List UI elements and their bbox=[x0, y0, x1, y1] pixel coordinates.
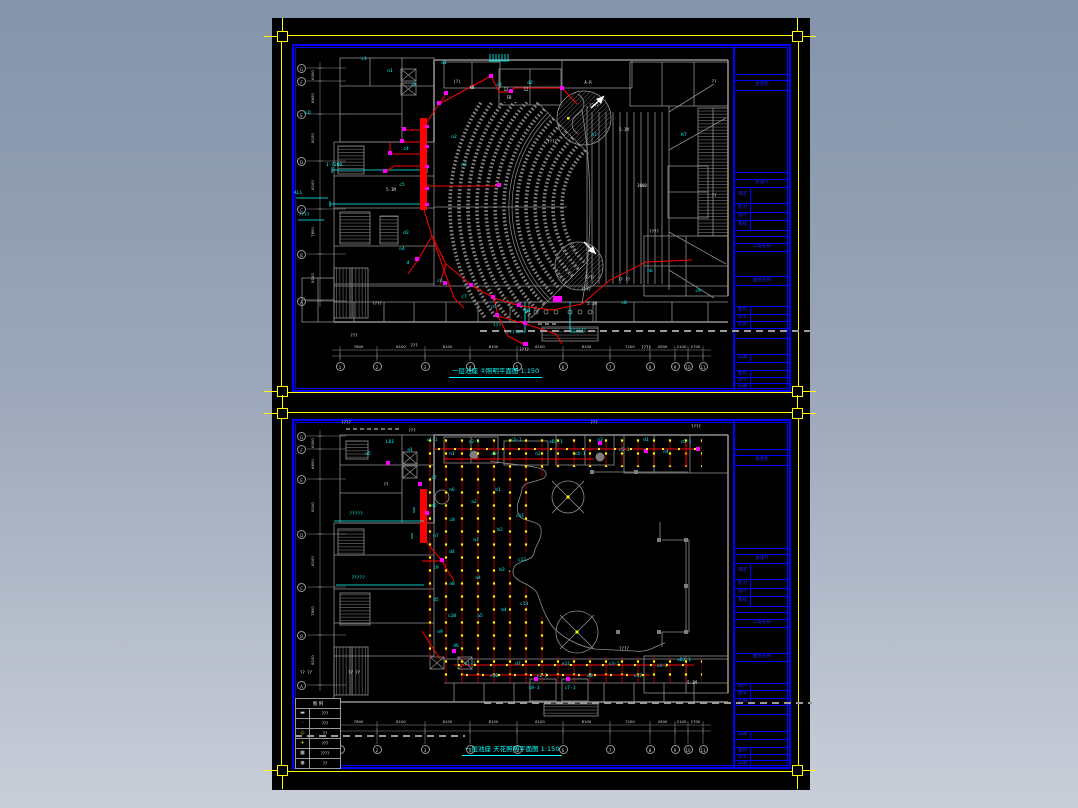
dimension-note: ???? bbox=[585, 276, 595, 280]
circuit-label: b2 bbox=[497, 529, 502, 534]
grid-bubble: 7 bbox=[606, 745, 615, 754]
ceiling-light-dot bbox=[630, 448, 632, 450]
title-block-label: 图别 bbox=[738, 372, 747, 377]
ceiling-light-dot bbox=[582, 448, 584, 450]
title-block-row-会签栏: 会签栏 bbox=[735, 80, 789, 89]
title-block-row bbox=[735, 739, 789, 747]
title-block-label: 图别 bbox=[738, 684, 747, 689]
frame-corner-mark bbox=[792, 765, 803, 776]
dimension-note: ???? bbox=[641, 346, 651, 350]
annotation-overlay: c1-1n1c2-1d3c3-1n2xD1-1c4-1n3c5-1d1n4c6-… bbox=[294, 421, 735, 767]
ceiling-light-dot bbox=[694, 448, 696, 450]
ceiling-light-dot bbox=[634, 664, 636, 666]
circuit-label: ????? bbox=[351, 577, 365, 582]
title-block-row bbox=[735, 338, 789, 355]
dot-symbol-icon: ● bbox=[296, 759, 310, 768]
title-block-row-比例: 比例 bbox=[735, 321, 789, 328]
ceiling-light-dot bbox=[482, 674, 484, 676]
title-block-row bbox=[735, 705, 789, 714]
circuit-label: d3 bbox=[491, 453, 496, 458]
dimension-value: 8100 bbox=[535, 720, 545, 724]
dimension-note: (?) bbox=[453, 80, 460, 84]
title-block: 会签栏总设计审定校对设计审核工程名称图纸名称图别图号比例日期图别图号日期 bbox=[733, 46, 789, 390]
circuit-label: n6 bbox=[449, 489, 454, 494]
dimension-value: 6000 bbox=[311, 70, 315, 80]
title-block-row bbox=[735, 251, 789, 276]
dimension-value: 2700 bbox=[691, 345, 701, 349]
grid-bubble: 11 bbox=[699, 362, 708, 371]
circuit-label: n4 bbox=[399, 248, 404, 253]
title-block-row bbox=[735, 548, 789, 555]
circuit-label: LD bbox=[305, 112, 310, 117]
annotation-overlay: c1n1c2d1c3d2LD1-7200AL1????n2n3c4c5d3n4c… bbox=[294, 46, 735, 390]
circuit-label: a3 bbox=[473, 539, 478, 544]
grid-bubble: E bbox=[297, 475, 306, 484]
title-block-row-图别: 图别 bbox=[735, 747, 789, 754]
grid-bubble: F bbox=[297, 445, 306, 454]
title-block-label: 审定 bbox=[738, 569, 747, 574]
circuit-label: c5-1 bbox=[619, 449, 630, 454]
legend-row: +??? bbox=[296, 738, 340, 748]
dimension-value: 2100 bbox=[677, 345, 687, 349]
circuit-label: n12 bbox=[634, 675, 642, 680]
title-block-row-日期: 日期 bbox=[735, 731, 789, 739]
circuit-label: c3 bbox=[496, 84, 501, 89]
ceiling-light-dot bbox=[614, 448, 616, 450]
dimension-note: ?? bbox=[384, 483, 389, 487]
circuit-label: n2 bbox=[535, 453, 540, 458]
title-block-label: 日期 bbox=[738, 385, 747, 390]
dimension-value: 4500 bbox=[658, 345, 668, 349]
circuit-label: c3-1 bbox=[511, 439, 522, 444]
ceiling-light-dot bbox=[454, 448, 456, 450]
dimension-value: 8100 bbox=[582, 345, 592, 349]
circuit-label: ???? bbox=[299, 214, 310, 219]
dimension-value: 8100 bbox=[489, 345, 499, 349]
grid-bubble: 10 bbox=[684, 745, 693, 754]
drawing-caption: 一层池座 天花照明平面图 1:150 bbox=[462, 746, 562, 756]
ceiling-light-dot bbox=[610, 674, 612, 676]
circuit-label: a1 bbox=[407, 449, 412, 454]
dimension-value: 8100 bbox=[311, 273, 315, 283]
title-block-label: 会签栏 bbox=[755, 83, 769, 88]
dimension-note: 3000 bbox=[637, 184, 647, 188]
dimension-value: 8100 bbox=[311, 502, 315, 512]
circuit-label: c4 bbox=[403, 148, 408, 153]
dimension-note: ???? bbox=[649, 230, 659, 234]
grid-bubble: A bbox=[297, 297, 306, 306]
title-block-label: 设计 bbox=[738, 590, 747, 595]
circuit-label: AL1 bbox=[294, 192, 302, 197]
circuit-label: LD1 bbox=[386, 441, 394, 446]
circuit-label: a4 bbox=[475, 577, 480, 582]
ceiling-light-dot bbox=[466, 674, 468, 676]
circuit-label: KT bbox=[681, 134, 686, 139]
ceiling-light-dot bbox=[458, 664, 460, 666]
title-block-label: 工程名称 bbox=[753, 621, 771, 626]
frame-corner-mark bbox=[792, 31, 803, 42]
dimension-note: ??? bbox=[590, 421, 597, 425]
ceiling-light-dot bbox=[534, 448, 536, 450]
title-block-row-工程名称: 工程名称 bbox=[735, 619, 789, 627]
ceiling-light-dot bbox=[666, 664, 668, 666]
legend-header: 图 例 bbox=[296, 699, 340, 708]
ceiling-light-dot bbox=[570, 664, 572, 666]
floor-plan-seating: c1n1c2d1c3d2LD1-7200AL1????n2n3c4c5d3n4c… bbox=[294, 46, 735, 390]
sheet-border: c1-1n1c2-1d3c3-1n2xD1-1c4-1n3c5-1d1n4c6-… bbox=[292, 419, 791, 769]
symbol-legend: 图 例▬???·???◇??+???■????●?? bbox=[295, 698, 341, 769]
title-block-label: 审核 bbox=[738, 599, 747, 604]
title-block-label: 日期 bbox=[738, 733, 747, 738]
ceiling-light-dot bbox=[646, 448, 648, 450]
cad-preview: { "colors":{"frame_yellow":"#ffff00","bo… bbox=[0, 0, 1078, 808]
legend-row: ▬??? bbox=[296, 708, 340, 718]
dimension-note: 12 bbox=[504, 88, 509, 92]
title-block-label: 审定 bbox=[738, 193, 747, 198]
circuit-label: d bbox=[407, 262, 410, 267]
dimension-value: 8100 bbox=[311, 556, 315, 566]
dimension-value: 4500 bbox=[658, 720, 668, 724]
dimension-value: 7800 bbox=[354, 720, 364, 724]
ceiling-light-dot bbox=[594, 674, 596, 676]
grid-bubble: 2 bbox=[373, 362, 382, 371]
circuit-label: c4-1 bbox=[575, 453, 586, 458]
title-block-label: 工程名称 bbox=[753, 245, 771, 250]
title-block-row-日期: 日期 bbox=[735, 354, 789, 361]
ceiling-light-dot bbox=[626, 674, 628, 676]
title-block-row-审定: 审定 bbox=[735, 187, 789, 203]
circuit-label: n8 bbox=[449, 583, 454, 588]
circuit-label: d3 bbox=[403, 232, 408, 237]
section-dashed-line bbox=[295, 735, 465, 737]
legend-text: ?? bbox=[310, 762, 340, 766]
title-block-label: 图号 bbox=[738, 378, 747, 383]
circuit-label: c9 bbox=[433, 567, 438, 572]
ceiling-light-dot bbox=[474, 664, 476, 666]
frame-corner-mark bbox=[277, 31, 288, 42]
circuit-label: n1 bbox=[449, 453, 454, 458]
dimension-note: ???? bbox=[372, 302, 382, 306]
ceiling-light-dot bbox=[566, 448, 568, 450]
ceiling-light-dot bbox=[618, 664, 620, 666]
dimension-note: 5.1M bbox=[619, 128, 629, 132]
frame-corner-mark bbox=[792, 408, 803, 419]
title-block-row bbox=[735, 661, 789, 682]
circuit-label: d1 bbox=[643, 439, 648, 444]
grid-bubble: G bbox=[297, 64, 306, 73]
circuit-label: b3 bbox=[499, 569, 504, 574]
circuit-label: b4 bbox=[501, 609, 506, 614]
circuit-label: d2 bbox=[527, 82, 532, 87]
sheet-bottom: c1-1n1c2-1d3c3-1n2xD1-1c4-1n3c5-1d1n4c6-… bbox=[281, 412, 799, 772]
bar-symbol-icon: ▬ bbox=[296, 709, 310, 718]
frame-corner-mark bbox=[277, 408, 288, 419]
dimension-note: ???? bbox=[691, 425, 701, 429]
dimension-value: 8100 bbox=[535, 345, 545, 349]
ceiling-plan: c1-1n1c2-1d3c3-1n2xD1-1c4-1n3c5-1d1n4c6-… bbox=[294, 421, 735, 767]
grid-bubble: 3 bbox=[421, 745, 430, 754]
circuit-label: ?????? bbox=[504, 332, 520, 337]
title-block-row bbox=[735, 449, 789, 456]
circuit-label: c10 bbox=[448, 615, 456, 620]
circuit-label: d7 bbox=[515, 663, 520, 668]
ceiling-light-dot bbox=[550, 448, 552, 450]
grid-bubble: 6 bbox=[559, 362, 568, 371]
dimension-value: 8100 bbox=[396, 345, 406, 349]
title-block-row bbox=[735, 465, 789, 548]
circuit-label: b1 bbox=[495, 489, 500, 494]
circuit-label: c7-1 bbox=[565, 687, 576, 692]
sheet-top: c1n1c2d1c3d2LD1-7200AL1????n2n3c4c5d3n4c… bbox=[281, 35, 799, 393]
dimension-value: 8100 bbox=[311, 655, 315, 665]
circuit-label: d6 bbox=[453, 645, 458, 650]
circuit-label: n4 bbox=[663, 451, 668, 456]
dimension-value: 2700 bbox=[691, 720, 701, 724]
circuit-label: n6 bbox=[647, 270, 652, 275]
title-block-label: 图别 bbox=[738, 749, 747, 754]
title-block-label: 图纸名称 bbox=[753, 279, 771, 284]
title-block-label: 总设计 bbox=[755, 557, 769, 562]
circuit-label: n5 bbox=[491, 306, 496, 311]
grid-bubble: 10 bbox=[684, 362, 693, 371]
title-block-row-会签栏: 会签栏 bbox=[735, 455, 789, 464]
title-block-label: 日期 bbox=[738, 762, 747, 767]
ceiling-light-dot bbox=[498, 674, 500, 676]
circuit-label: n10 bbox=[490, 675, 498, 680]
circuit-label: c7 bbox=[461, 296, 466, 301]
dimension-note: FB bbox=[507, 96, 512, 100]
dimension-value: 8100 bbox=[582, 720, 592, 724]
circuit-label: n2 bbox=[451, 136, 456, 141]
title-block-row-审定: 审定 bbox=[735, 563, 789, 579]
grid-bubble: 8 bbox=[646, 362, 655, 371]
circuit-label: a2 bbox=[471, 501, 476, 506]
circuit-label: ????? bbox=[349, 513, 363, 518]
legend-text: ??? bbox=[310, 712, 340, 716]
grid-bubble: E bbox=[297, 110, 306, 119]
ceiling-light-dot bbox=[438, 448, 440, 450]
circuit-label: xD2-1 bbox=[677, 659, 691, 664]
title-block-label: 审核 bbox=[738, 223, 747, 228]
title-block-label: 总设计 bbox=[755, 181, 769, 186]
dimension-value: 8100 bbox=[311, 133, 315, 143]
circuit-label: c7 bbox=[431, 477, 436, 482]
title-block-label: 设计 bbox=[738, 214, 747, 219]
dimension-value: 8100 bbox=[489, 720, 499, 724]
title-block-label: 图号 bbox=[738, 315, 747, 320]
dimension-value: 6600 bbox=[311, 459, 315, 469]
ceiling-light-dot bbox=[506, 664, 508, 666]
circuit-label: d4 bbox=[525, 310, 530, 315]
dimension-note: ???? bbox=[589, 104, 599, 108]
circuit-label: c5 bbox=[399, 184, 404, 189]
dimension-note: KB bbox=[470, 86, 475, 90]
dimension-note: ??? bbox=[350, 334, 357, 338]
ceiling-light-dot bbox=[530, 674, 532, 676]
circuit-label: c8-1 bbox=[529, 687, 540, 692]
dimension-note: ?? bbox=[712, 194, 717, 198]
title-block-label: 图号 bbox=[738, 692, 747, 697]
legend-text: ??? bbox=[310, 722, 340, 726]
dimension-note: ???? bbox=[547, 140, 557, 144]
grid-bubble: C bbox=[297, 205, 306, 214]
circuit-label: ??? bbox=[493, 325, 501, 330]
grid-bubble: B bbox=[297, 631, 306, 640]
title-block-row-审核: 审核 bbox=[735, 220, 789, 230]
dimension-value: 2100 bbox=[677, 720, 687, 724]
dimension-note: ???? bbox=[341, 421, 351, 425]
circuit-label: c9 bbox=[695, 290, 700, 295]
circuit-label: c11 bbox=[516, 515, 524, 520]
title-block-row bbox=[735, 714, 789, 731]
drawing-caption: 一层池座 ②照明平面图 1:150 bbox=[449, 368, 542, 378]
grid-bubble: A bbox=[297, 681, 306, 690]
ceiling-light-dot bbox=[514, 674, 516, 676]
circuit-label: d4 bbox=[449, 551, 454, 556]
title-block-row-审核: 审核 bbox=[735, 596, 789, 606]
title-block-row-校对: 校对 bbox=[735, 579, 789, 588]
title-block-row-图别: 图别 bbox=[735, 306, 789, 313]
section-dashed-line bbox=[480, 330, 812, 332]
circuit-label: c2 bbox=[411, 84, 416, 89]
title-block-label: 图号 bbox=[738, 755, 747, 760]
legend-text: ???? bbox=[310, 752, 340, 756]
circuit-label: c1-1 bbox=[427, 439, 438, 444]
dimension-note: ?? ?? bbox=[618, 278, 630, 282]
circuit-label: n9 bbox=[437, 631, 442, 636]
title-block-row bbox=[735, 362, 789, 370]
section-dashed-line bbox=[484, 702, 812, 704]
dimension-value: 8100 bbox=[443, 720, 453, 724]
dimension-note: ???? bbox=[581, 288, 591, 292]
grid-bubble: 8 bbox=[646, 745, 655, 754]
circuit-label: xD1-1 bbox=[549, 441, 563, 446]
title-block-row-总设计: 总设计 bbox=[735, 554, 789, 562]
dimension-value: 8100 bbox=[396, 720, 406, 724]
ceiling-light-dot bbox=[546, 674, 548, 676]
square-symbol-icon: ■ bbox=[296, 749, 310, 758]
dimension-note: 5.1M bbox=[687, 681, 697, 685]
title-block-row-图别: 图别 bbox=[735, 683, 789, 691]
title-block-label: 校对 bbox=[738, 206, 747, 211]
dimension-value: 6000 bbox=[311, 438, 315, 448]
grid-bubble: 3 bbox=[421, 362, 430, 371]
title-block-row bbox=[735, 46, 789, 74]
circuit-label: n7 bbox=[433, 535, 438, 540]
dimension-value: 7800 bbox=[311, 227, 315, 237]
title-block-row-总设计: 总设计 bbox=[735, 179, 789, 187]
title-block-label: 会签栏 bbox=[755, 458, 769, 463]
ceiling-light-dot bbox=[470, 448, 472, 450]
title-block-row-日期: 日期 bbox=[735, 760, 789, 767]
title-block-row-工程名称: 工程名称 bbox=[735, 243, 789, 251]
title-block-row bbox=[735, 612, 789, 619]
ceiling-light-dot bbox=[554, 664, 556, 666]
grid-bubble: 1 bbox=[336, 362, 345, 371]
tick-symbol-icon: · bbox=[296, 719, 310, 728]
title-block-row bbox=[735, 421, 789, 449]
ceiling-light-dot bbox=[522, 664, 524, 666]
title-block-row bbox=[735, 285, 789, 306]
legend-text: ??? bbox=[310, 742, 340, 746]
title-block-label: 图别 bbox=[738, 308, 747, 313]
title-block-row-图号: 图号 bbox=[735, 754, 789, 761]
circuit-label: n3 bbox=[461, 164, 466, 169]
circuit-label: c6 bbox=[437, 280, 442, 285]
ceiling-light-dot bbox=[578, 674, 580, 676]
title-block-row-图号: 图号 bbox=[735, 690, 789, 698]
lamp-symbol-icon: + bbox=[296, 739, 310, 748]
circuit-label: n3 bbox=[597, 439, 602, 444]
ceiling-light-dot bbox=[662, 448, 664, 450]
ceiling-light-dot bbox=[642, 674, 644, 676]
ceiling-light-dot bbox=[650, 664, 652, 666]
circuit-label: c6-1 bbox=[681, 441, 692, 446]
dimension-note: A-R bbox=[584, 81, 591, 85]
ceiling-light-dot bbox=[518, 448, 520, 450]
title-block-row-设计: 设计 bbox=[735, 588, 789, 596]
dimension-value: 7800 bbox=[354, 345, 364, 349]
legend-title: 图 例 bbox=[313, 701, 323, 707]
circuit-label: c8 bbox=[621, 302, 626, 307]
dimension-value: 7200 bbox=[625, 720, 635, 724]
title-block-row-日期: 日期 bbox=[735, 383, 789, 390]
title-block-label: 校对 bbox=[738, 582, 747, 587]
sheet-border: c1n1c2d1c3d2LD1-7200AL1????n2n3c4c5d3n4c… bbox=[292, 44, 791, 392]
dimension-note: 12 bbox=[524, 88, 529, 92]
circuit-label: d5 bbox=[433, 599, 438, 604]
circuit-label: c2-1 bbox=[469, 441, 480, 446]
ceiling-light-dot bbox=[678, 448, 680, 450]
grid-bubble: G bbox=[297, 432, 306, 441]
title-block-row bbox=[735, 90, 789, 172]
caption-text: 一层池座 天花照明平面图 1:150 bbox=[465, 745, 559, 753]
circuit-label: c12 bbox=[518, 559, 526, 564]
circuit-label: c13 bbox=[520, 603, 528, 608]
grid-bubble: 2 bbox=[373, 745, 382, 754]
frame-corner-mark bbox=[277, 765, 288, 776]
title-block-row-设计: 设计 bbox=[735, 212, 789, 219]
circuit-label: d1 bbox=[441, 62, 446, 67]
ceiling-light-dot bbox=[502, 448, 504, 450]
ceiling-light-dot bbox=[598, 448, 600, 450]
dimension-note: ?? bbox=[712, 80, 717, 84]
circuit-label: d2 bbox=[431, 505, 436, 510]
dimension-value: 8100 bbox=[443, 345, 453, 349]
legend-row: ·??? bbox=[296, 718, 340, 728]
title-block-row-校对: 校对 bbox=[735, 203, 789, 212]
ceiling-light-dot bbox=[562, 674, 564, 676]
ceiling-light-dot bbox=[586, 664, 588, 666]
grid-bubble: D bbox=[297, 157, 306, 166]
title-block-row-图号: 图号 bbox=[735, 314, 789, 321]
grid-bubble: F bbox=[297, 77, 306, 86]
ceiling-light-dot bbox=[682, 664, 684, 666]
title-block-label: 日期 bbox=[738, 356, 747, 361]
title-block-row-图纸名称: 图纸名称 bbox=[735, 653, 789, 661]
title-block: 会签栏总设计审定校对设计审核工程名称图纸名称图别图号比例日期图别图号日期 bbox=[733, 421, 789, 767]
dimension-value: 6600 bbox=[311, 93, 315, 103]
circuit-label: 1-7200 bbox=[326, 164, 342, 169]
grid-bubble: D bbox=[297, 530, 306, 539]
title-block-row-图纸名称: 图纸名称 bbox=[735, 276, 789, 284]
title-block-label: 比例 bbox=[738, 323, 747, 328]
ceiling-light-dot bbox=[490, 664, 492, 666]
grid-bubble: 7 bbox=[606, 362, 615, 371]
grid-bubble: 9 bbox=[671, 745, 680, 754]
title-block-row bbox=[735, 627, 789, 652]
dimension-note: ??? bbox=[408, 429, 415, 433]
